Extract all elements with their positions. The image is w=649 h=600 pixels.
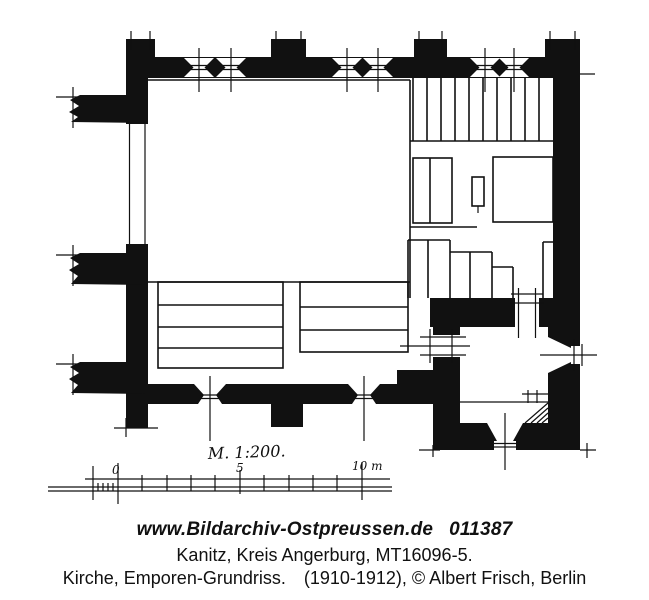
- window-centerlines: [191, 48, 523, 441]
- archive-site-text: www.Bildarchiv-Ostpreussen.de: [137, 519, 434, 540]
- caption-line-subject: Kirche, Emporen-Grundriss.(1910-1912), ©…: [0, 568, 649, 589]
- location-text: Kanitz, Kreis Angerburg, MT16096-5.: [176, 545, 472, 565]
- scale-ratio-label: M. 1:200.: [206, 441, 285, 463]
- gallery-pews-top-right: [410, 78, 553, 141]
- gallery-furniture-right: [410, 157, 553, 227]
- caption-line-archive: www.Bildarchiv-Ostpreussen.de011387: [0, 519, 649, 541]
- caption-line-location: Kanitz, Kreis Angerburg, MT16096-5.: [0, 545, 649, 566]
- scale-tick-5: 5: [236, 461, 244, 475]
- gallery-pews-left: [158, 282, 408, 368]
- credit-text: (1910-1912), © Albert Frisch, Berlin: [304, 568, 586, 588]
- scale-bar: M. 1:200. 0 5 10 m: [48, 441, 392, 504]
- gallery-stairs: [408, 240, 553, 298]
- scale-tick-10m: 10 m: [352, 459, 382, 473]
- subject-text: Kirche, Emporen-Grundriss.: [63, 568, 286, 588]
- scale-tick-0: 0: [112, 463, 120, 477]
- scanned-archive-page: M. 1:200. 0 5 10 m www.Bildarchiv-Ostpre…: [0, 0, 649, 600]
- archive-image-number: 011387: [449, 519, 512, 540]
- church-walls: [69, 39, 580, 450]
- floor-plan-drawing: M. 1:200. 0 5 10 m: [0, 0, 649, 600]
- nave-outline: [148, 80, 410, 298]
